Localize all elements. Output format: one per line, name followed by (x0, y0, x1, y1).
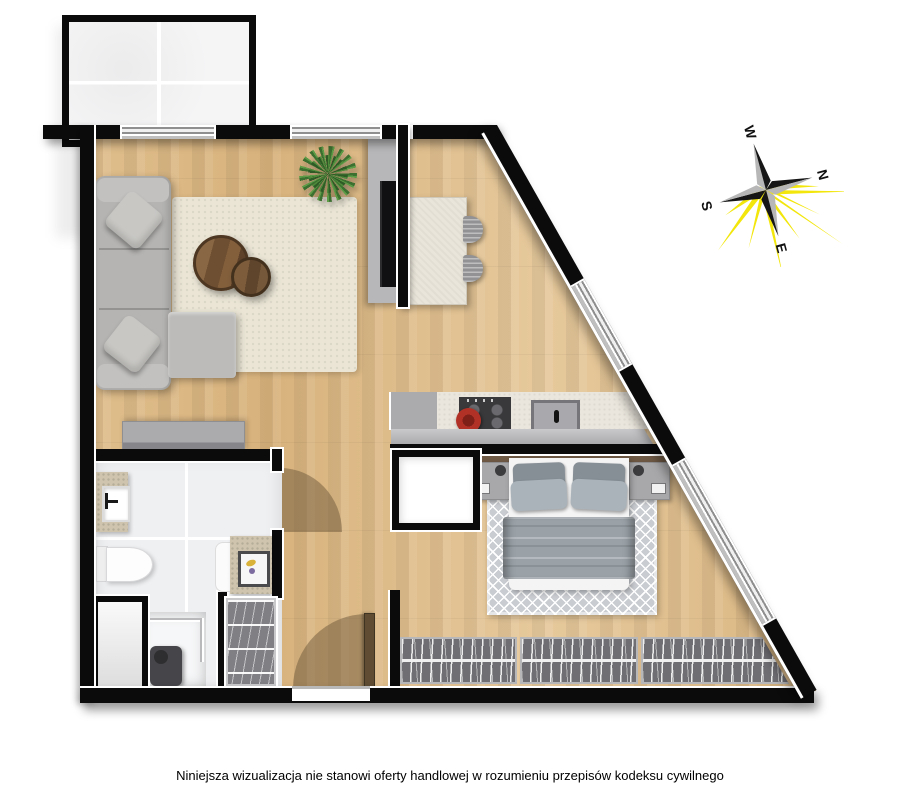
shower-glass-top (140, 618, 204, 620)
floorplan-canvas: N E S W Niniejsza wizualizacja nie stano… (0, 0, 900, 795)
nightstand-lamp (495, 465, 506, 476)
toilet-bowl (106, 547, 153, 582)
nightstand-drawer (651, 483, 666, 494)
basin-accessory (249, 568, 255, 574)
nightstand-right (629, 462, 670, 500)
wall-bottom (80, 686, 814, 703)
disclaimer-text: Niniejsza wizualizacja nie stanowi ofert… (0, 768, 900, 783)
potted-plant (299, 146, 357, 202)
sink-faucet (554, 410, 559, 423)
bed-blanket (503, 517, 635, 579)
plant-inner-leaves (308, 155, 348, 193)
kitchen-cabinet (391, 392, 437, 430)
tv-partition-wall (398, 125, 408, 307)
bathroom-wall-top (94, 449, 282, 463)
bed (509, 458, 629, 590)
vanity-basin (238, 551, 270, 587)
wardrobe-section (520, 637, 638, 684)
bathroom-wall-right-upper (272, 449, 282, 471)
basin-accessory (245, 558, 256, 567)
sideboard (122, 421, 245, 451)
compass-label-south: S (698, 199, 716, 212)
window-top-2 (290, 125, 382, 139)
washbasin-faucet-spout (105, 500, 118, 503)
wall-left (80, 125, 96, 700)
window-top-1 (120, 125, 216, 139)
sofa-cushion-line (99, 308, 169, 310)
shower-fixture (150, 646, 182, 686)
shower-glass-side (200, 618, 202, 662)
bathroom-closet (226, 598, 276, 686)
entrance-door-leaf (364, 613, 375, 691)
compass-rose: N E S W (694, 117, 844, 267)
wardrobe-section (400, 637, 517, 684)
entrance-opening (292, 686, 370, 701)
compass-star (707, 131, 825, 249)
compass-label-west: W (741, 124, 760, 142)
compass-label-north: N (814, 168, 832, 182)
coffee-table-small (231, 257, 271, 297)
vanity-counter (230, 536, 272, 594)
wardrobe (400, 637, 792, 684)
bathroom-niche (92, 596, 148, 696)
nightstand-lamp (633, 465, 644, 476)
dining-table (408, 197, 467, 305)
technical-shaft (392, 450, 480, 530)
bed-pillow (510, 479, 567, 512)
tv (380, 181, 397, 287)
bathroom-wall-right-mid (272, 530, 282, 598)
wall-top (43, 125, 497, 139)
bed-pillow (570, 479, 627, 512)
bedroom-wall-stub (390, 590, 400, 690)
sofa-chaise (168, 312, 236, 378)
shower-head (154, 650, 168, 664)
